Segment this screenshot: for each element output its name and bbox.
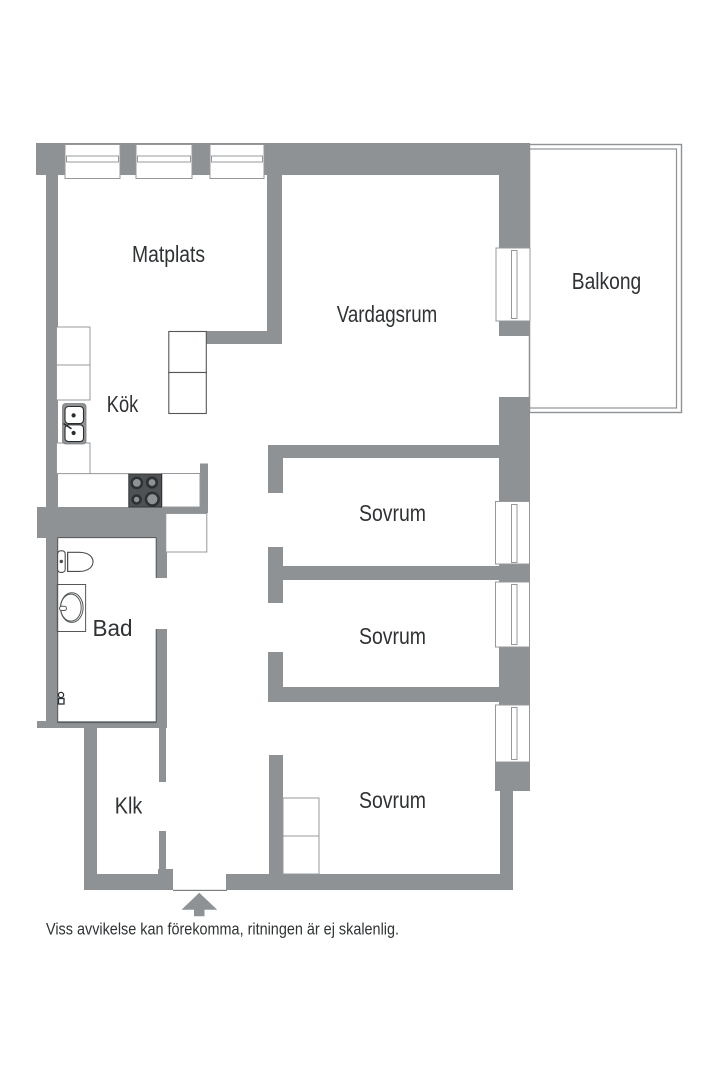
svg-text:Sovrum: Sovrum xyxy=(359,500,426,526)
svg-text:Balkong: Balkong xyxy=(572,268,642,294)
svg-text:Klk: Klk xyxy=(115,793,143,819)
svg-text:Bad: Bad xyxy=(93,615,133,641)
svg-text:Kök: Kök xyxy=(107,391,139,417)
svg-text:Viss avvikelse kan förekomma,: Viss avvikelse kan förekomma, ritningen … xyxy=(46,920,399,939)
svg-text:Sovrum: Sovrum xyxy=(359,623,426,649)
svg-text:Matplats: Matplats xyxy=(132,241,205,267)
svg-text:Vardagsrum: Vardagsrum xyxy=(337,301,438,327)
svg-text:Sovrum: Sovrum xyxy=(359,787,426,813)
